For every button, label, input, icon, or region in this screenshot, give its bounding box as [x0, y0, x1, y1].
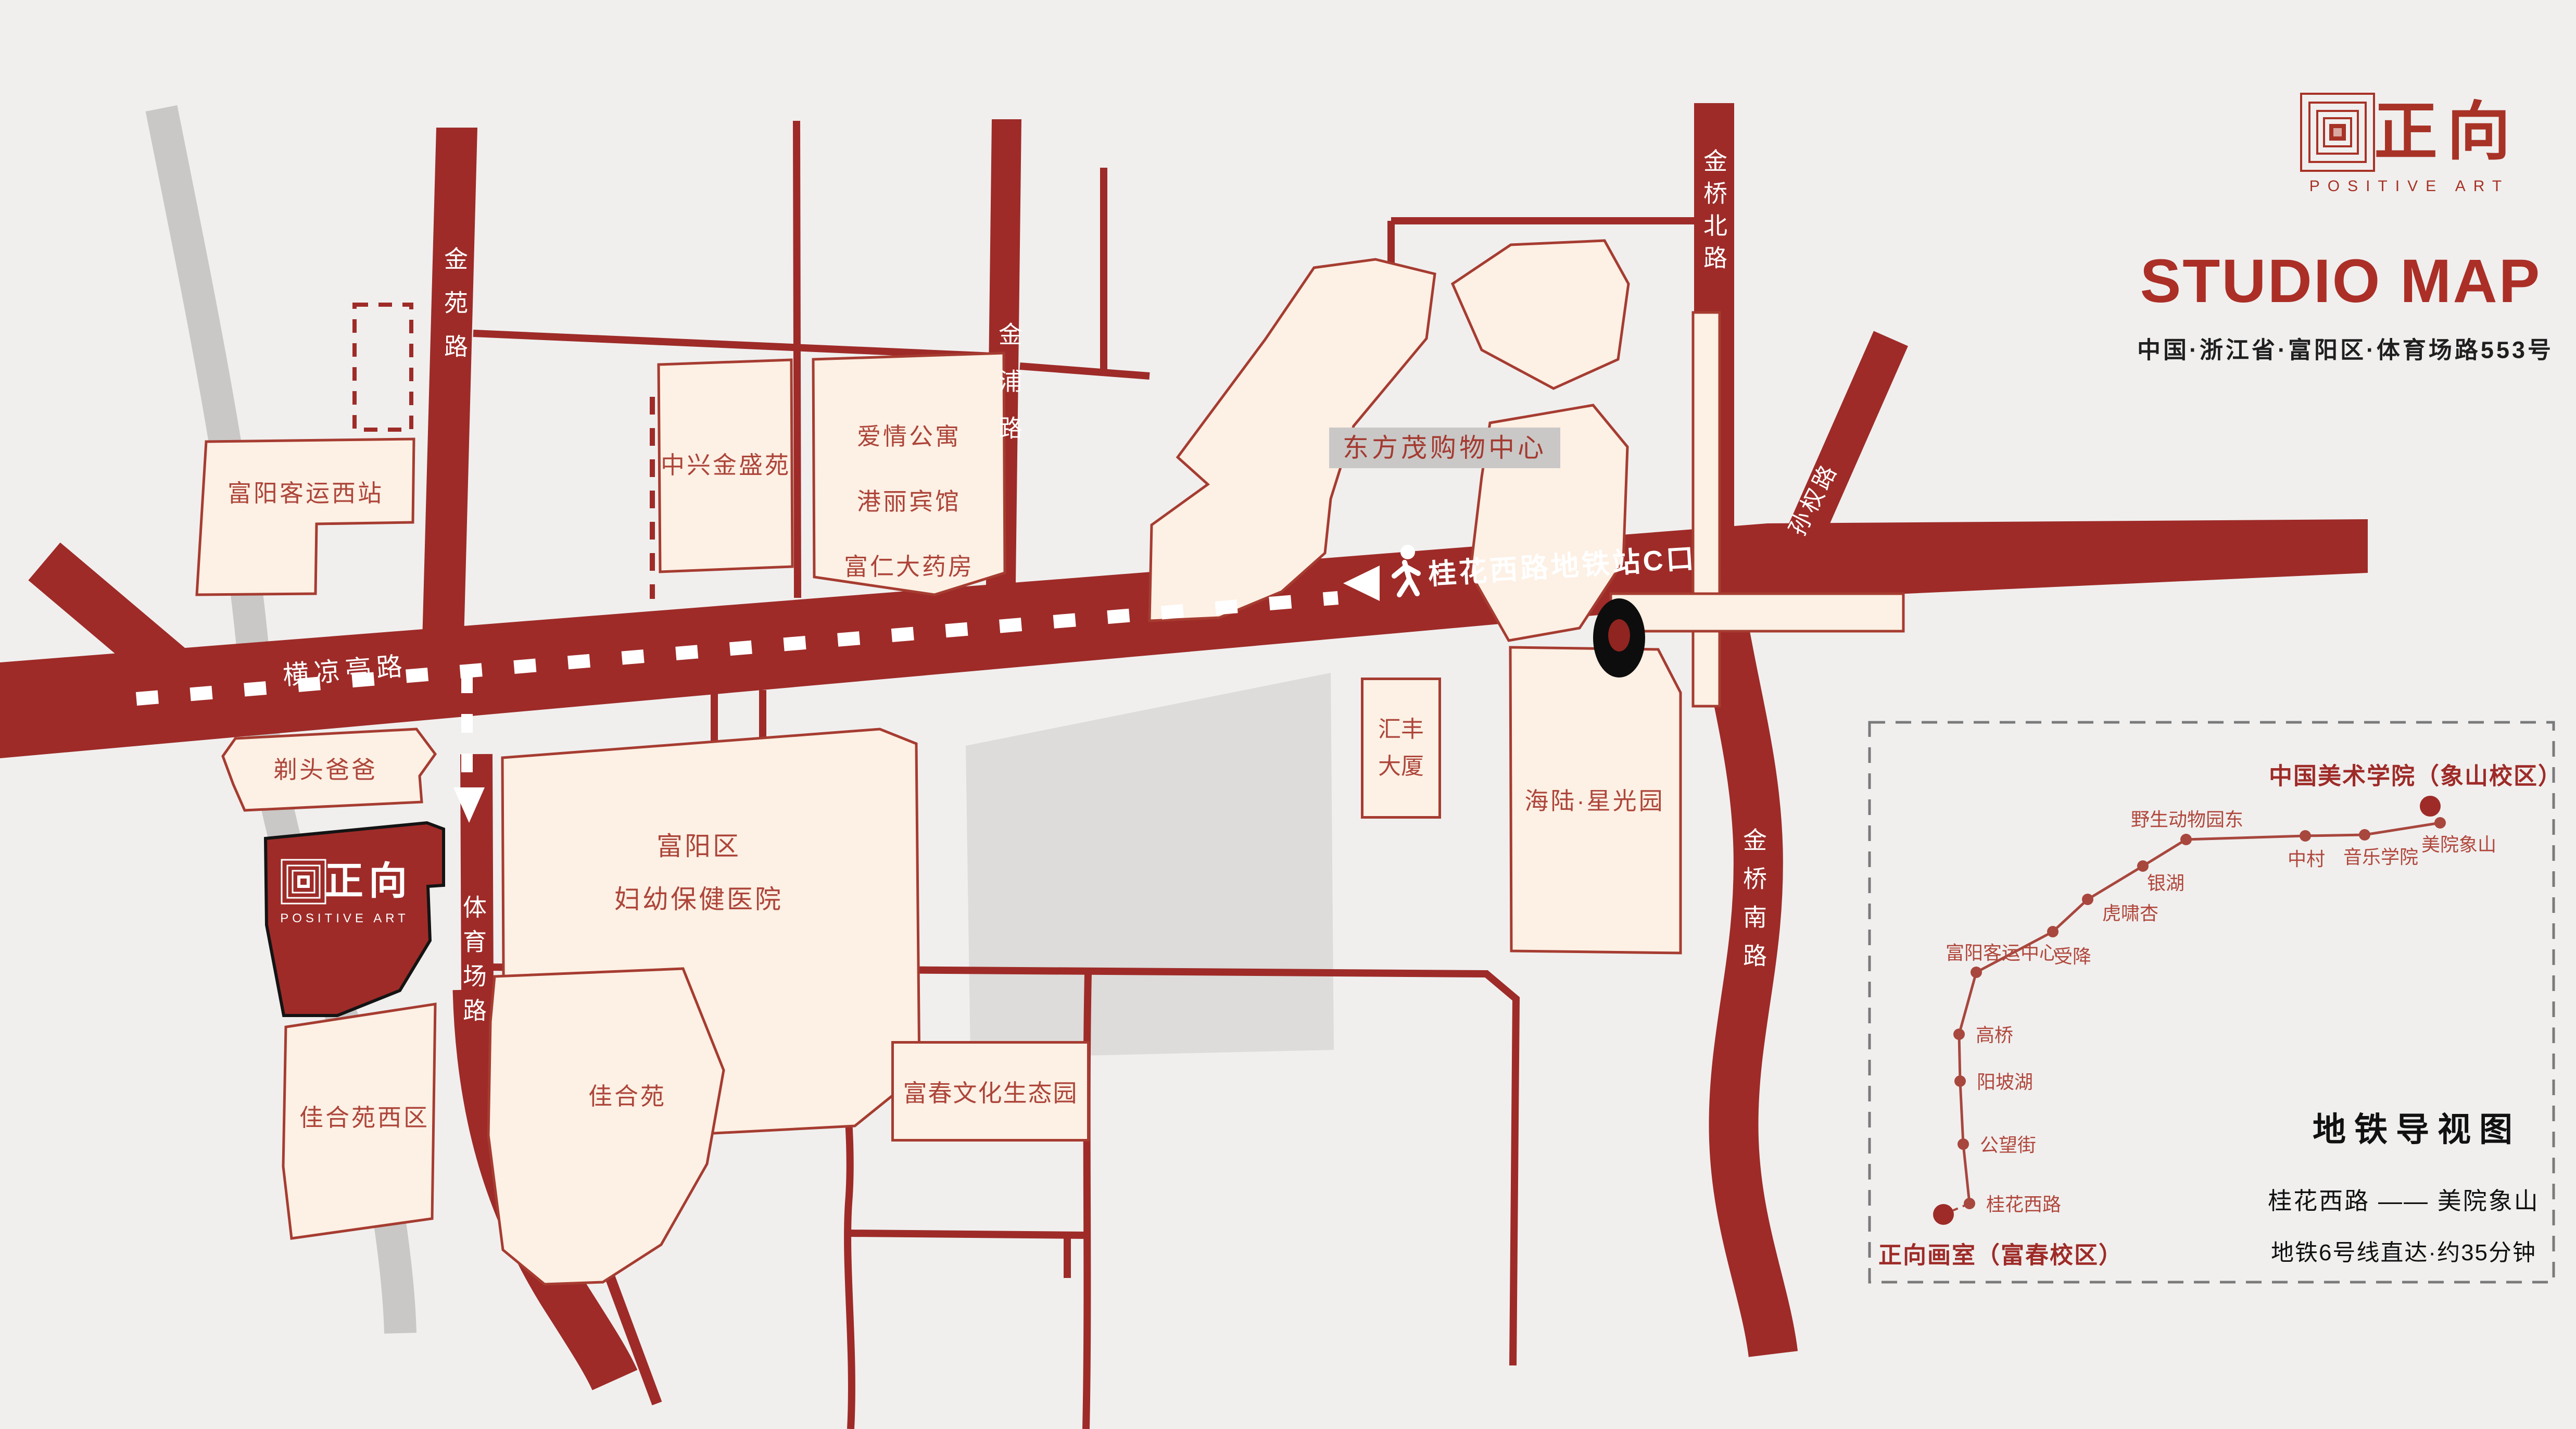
station-label-受降: 受降: [2054, 946, 2091, 967]
station-label-音乐学院: 音乐学院: [2343, 846, 2418, 868]
header-address: 中国·浙江省·富阳区·体育场路553号: [2137, 339, 2554, 362]
building-label-hospital-2: 妇幼保健医院: [614, 886, 783, 912]
huifeng-line2: 大厦: [1378, 748, 1424, 785]
road-main-east-shape: [1767, 519, 2368, 600]
logo-spiral-icon: [2301, 94, 2374, 171]
station-dot-音乐学院: [2359, 829, 2370, 841]
station-label-银湖: 银湖: [2147, 872, 2184, 894]
building-label-hailu: 海陆·星光园: [1524, 789, 1664, 813]
road-jinyuan-shape: [421, 128, 477, 680]
road-label-tiyuchang: 体育场路: [461, 895, 485, 1032]
header-logo-text: 正向: [2374, 99, 2520, 163]
building-label-west-station: 富阳客运西站: [228, 481, 384, 505]
building-box-huifeng: 汇丰 大厦: [1361, 678, 1441, 819]
station-label-中村: 中村: [2288, 848, 2325, 870]
building-label-zhongxing: 中兴金盛苑: [661, 453, 791, 477]
road-label-jinpu: 金浦路: [997, 322, 1021, 462]
station-dot-美院象山: [2434, 817, 2446, 829]
gray-block: [966, 673, 1334, 1058]
station-dot-银湖: [2137, 860, 2149, 872]
building-label-aiqing: 爱情公寓: [857, 424, 961, 448]
road-label-jinqiao-south: 金桥南路: [1741, 828, 1765, 982]
building-jiahe: [488, 969, 724, 1284]
huifeng-line1: 汇丰: [1378, 711, 1424, 748]
studio-logo-subtext: POSITIVE ART: [280, 912, 409, 925]
road-label-jinyuan: 金苑路: [443, 246, 466, 378]
station-dot-野生动物园东: [2180, 834, 2192, 845]
inset-note: 地铁6号线直达·约35分钟: [2271, 1242, 2536, 1264]
station-dot-阳坡湖: [1954, 1075, 1966, 1087]
station-dot-公望街: [1958, 1138, 1969, 1150]
header-logo-subtext: POSITIVE ART: [2309, 179, 2510, 194]
inset-start-terminal-dot: [1933, 1204, 1954, 1225]
page-title: STUDIO MAP: [2140, 250, 2542, 312]
inset-start-label: 正向画室（富春校区）: [1878, 1244, 2123, 1267]
building-box-fuchun-park: 富春文化生态园: [891, 1041, 1090, 1142]
building-label-gangli: 港丽宾馆: [857, 490, 961, 513]
metro-station-structure-bar: [1693, 312, 1720, 706]
inset-end-terminal-dot: [2420, 796, 2441, 817]
metro-stations-group: 桂花西路公望街阳坡湖高桥富阳客运中心受降虎啸杏银湖野生动物园东中村音乐学院美院象…: [1946, 809, 2496, 1215]
building-west-station: [197, 439, 414, 595]
station-label-阳坡湖: 阳坡湖: [1977, 1071, 2033, 1093]
building-label-furen: 富仁大药房: [844, 555, 974, 579]
inset-route: 桂花西路 —— 美院象山: [2268, 1189, 2540, 1213]
station-label-虎啸杏: 虎啸杏: [2102, 902, 2158, 924]
station-label-高桥: 高桥: [1976, 1024, 2013, 1046]
map-canvas: 桂花西路公望街阳坡湖高桥富阳客运中心受降虎啸杏银湖野生动物园东中村音乐学院美院象…: [0, 0, 2576, 1429]
station-dot-受降: [2047, 926, 2059, 937]
building-label-jiahe: 佳合苑: [588, 1084, 666, 1108]
station-dot-中村: [2300, 830, 2311, 842]
station-label-桂花西路: 桂花西路: [1986, 1194, 2061, 1215]
station-dot-富阳客运中心: [1971, 967, 1982, 978]
station-label-公望街: 公望街: [1980, 1134, 2036, 1156]
inset-end-label: 中国美术学院（象山校区）: [2269, 764, 2562, 788]
building-label-dongfangmao: 东方茂购物中心: [1329, 428, 1560, 468]
metro-entrance-marker: [1593, 598, 1645, 678]
building-label-jiahe-west: 佳合苑西区: [299, 1106, 430, 1130]
inset-title: 地铁导视图: [2313, 1113, 2521, 1146]
fuchun-park-label: 富春文化生态园: [903, 1074, 1078, 1109]
station-label-野生动物园东: 野生动物园东: [2131, 809, 2243, 830]
metro-station-structure-arm: [1611, 594, 1903, 631]
station-dot-虎啸杏: [2082, 894, 2093, 905]
studio-logo-text: 正向: [325, 862, 412, 900]
building-label-hospital-1: 富阳区: [656, 833, 741, 859]
studio-map-poster: 桂花西路公望街阳坡湖高桥富阳客运中心受降虎啸杏银湖野生动物园东中村音乐学院美院象…: [0, 0, 2576, 1429]
road-fork-west: [44, 561, 172, 669]
station-label-富阳客运中心: 富阳客运中心: [1946, 942, 2058, 963]
building-dongfangmao-northeast: [1453, 241, 1628, 388]
station-label-美院象山: 美院象山: [2421, 834, 2496, 855]
station-dot-桂花西路: [1964, 1198, 1975, 1209]
road-label-jinqiao-north: 金桥北路: [1702, 148, 1726, 278]
station-dot-高桥: [1953, 1029, 1965, 1040]
building-label-titou: 剃头爸爸: [273, 758, 377, 782]
